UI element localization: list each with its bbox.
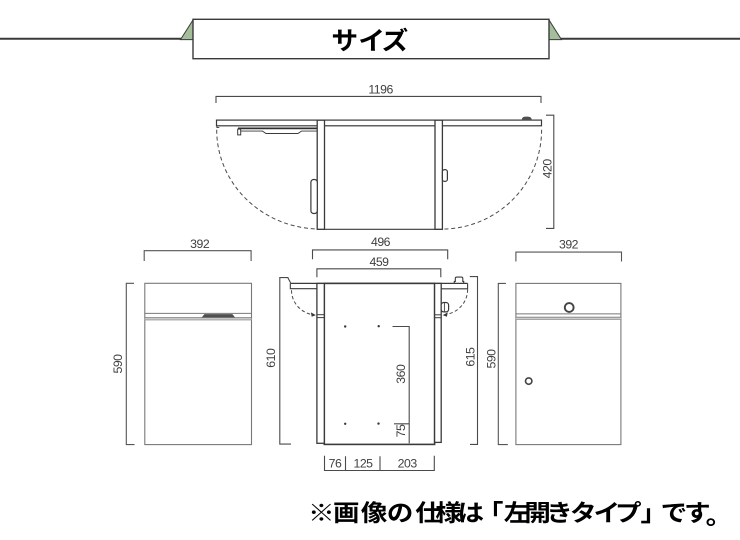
svg-text:76: 76 — [329, 457, 342, 471]
svg-text:360: 360 — [394, 364, 408, 384]
svg-text:1196: 1196 — [368, 83, 393, 97]
svg-text:459: 459 — [369, 255, 389, 269]
svg-text:420: 420 — [541, 159, 555, 179]
svg-text:75: 75 — [394, 424, 408, 437]
svg-text:590: 590 — [484, 349, 498, 369]
svg-text:392: 392 — [190, 237, 210, 251]
svg-text:610: 610 — [264, 348, 278, 368]
svg-text:203: 203 — [398, 457, 418, 471]
svg-text:125: 125 — [353, 457, 373, 471]
svg-text:496: 496 — [371, 235, 391, 249]
svg-text:392: 392 — [559, 238, 579, 252]
svg-text:590: 590 — [111, 354, 125, 374]
svg-text:615: 615 — [463, 347, 477, 367]
